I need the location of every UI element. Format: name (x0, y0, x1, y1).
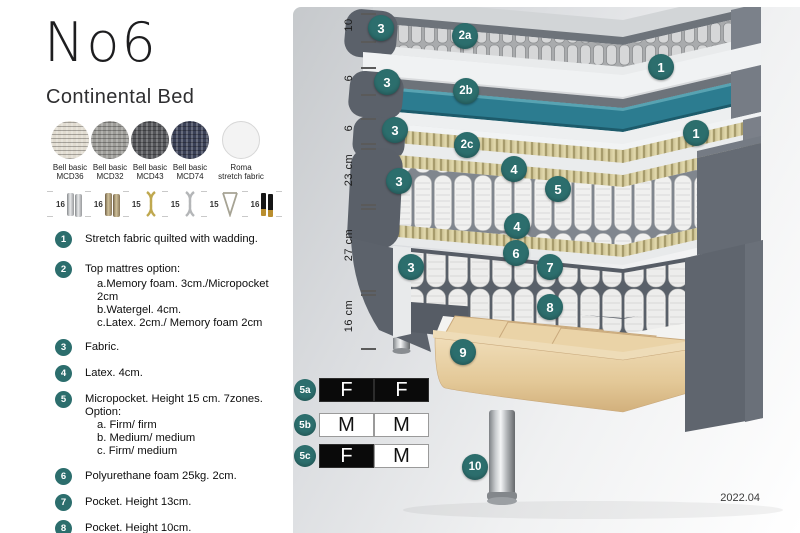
leg-height: 16 (56, 200, 65, 209)
dimension-tick (361, 204, 376, 206)
separator (242, 191, 248, 217)
fabric-swatch-image (222, 121, 260, 159)
dimension-label: 23 cm (343, 150, 355, 190)
callout-badge: 1 (683, 120, 709, 146)
swatch-caption-line: Bell basic (133, 163, 167, 172)
fabric-swatch-caption: Roma stretch fabric (218, 163, 264, 181)
firmness-row-badge: 5b (294, 414, 316, 436)
firmness-cells: F F (319, 378, 429, 402)
legend-item-7: 7 Pocket. Height 13cm. (55, 494, 290, 511)
callout-badge: 6 (503, 240, 529, 266)
page: No6 Continental Bed Bell basic MCD36 Bel… (0, 0, 800, 533)
legend-item-5: 5 Micropocket. Height 15 cm. 7zones. Opt… (55, 391, 290, 458)
callout-badge: 3 (398, 254, 424, 280)
leg-option-twisted-silver: 15 (171, 191, 198, 217)
legend-text: Micropocket. Height 15 cm. 7zones. Optio… (85, 391, 290, 419)
fabric-swatch-caption: Bell basic MCD32 (93, 163, 127, 181)
leg-height: 16 (251, 200, 260, 209)
swatch-caption-line: stretch fabric (218, 172, 264, 181)
callout-badge: 3 (382, 117, 408, 143)
swatch-caption-line: Bell basic (53, 163, 87, 172)
swatch-caption-line: Bell basic (93, 163, 127, 172)
separator (47, 191, 53, 217)
firmness-cell: F (319, 444, 374, 468)
callout-badge: 3 (368, 15, 394, 41)
legend-number-badge: 5 (55, 391, 72, 408)
separator (276, 191, 282, 217)
dimension-tick (361, 294, 376, 296)
version-label: 2022.04 (720, 492, 760, 504)
fabric-swatch: Bell basic MCD36 (50, 121, 90, 181)
separator (85, 191, 91, 217)
firmness-row-5c: 5c F M (294, 444, 429, 468)
fabric-swatch-caption: Bell basic MCD43 (133, 163, 167, 181)
callout-badge: 9 (450, 339, 476, 365)
firmness-row-5b: 5b M M (294, 413, 429, 437)
swatch-caption-line: MCD36 (53, 172, 87, 181)
callout-badge: 1 (648, 54, 674, 80)
legend-text: Pocket. Height 13cm. (85, 494, 191, 511)
callout-badge: 4 (504, 213, 530, 239)
legend-number-badge: 7 (55, 494, 72, 511)
callout-badge: 3 (374, 69, 400, 95)
product-subtitle: Continental Bed (46, 86, 194, 109)
legend-subitem: c.Latex. 2cm./ Memory foam 2cm (97, 317, 290, 330)
dimension-label: 10 (343, 5, 355, 45)
leg-option-twisted-gold: 15 (132, 191, 159, 217)
front-metal-leg (487, 410, 517, 505)
firmness-cell: M (319, 413, 374, 437)
hairpin-leg-icon (221, 191, 239, 217)
callout-badge: 4 (501, 156, 527, 182)
swatch-caption-line: MCD43 (133, 172, 167, 181)
legend-item-1: 1 Stretch fabric quilted with wadding. (55, 231, 290, 248)
callout-badge: 5 (545, 176, 571, 202)
twisted-leg-icon (143, 191, 159, 217)
legend-text: Stretch fabric quilted with wadding. (85, 231, 258, 248)
dimension-tick (361, 67, 376, 69)
legend-text: Top mattres option: (85, 261, 180, 278)
firmness-row-badge: 5a (294, 379, 316, 401)
swatch-caption-line: MCD32 (93, 172, 127, 181)
legend-number-badge: 8 (55, 520, 72, 533)
legend-item-4: 4 Latex. 4cm. (55, 365, 290, 382)
dimension-tick (361, 94, 376, 96)
callout-badge: 10 (462, 454, 488, 480)
swatch-caption-line: Roma (218, 163, 264, 172)
leg-height: 16 (94, 200, 103, 209)
callout-badge: 3 (386, 168, 412, 194)
firmness-cell: M (374, 444, 429, 468)
legend-number-badge: 6 (55, 468, 72, 485)
firmness-cells: M M (319, 413, 429, 437)
dimension-tick (361, 208, 376, 210)
dimension-label: 6 (343, 58, 355, 98)
dimension-tick (361, 290, 376, 292)
firmness-cells: F M (319, 444, 429, 468)
legend-text: Fabric. (85, 339, 119, 356)
leg-option-black-gold: 16 (251, 191, 274, 217)
legend-item-2: 2 Top mattres option: a.Memory foam. 3cm… (55, 261, 290, 330)
swatch-caption-line: MCD74 (173, 172, 207, 181)
fabric-swatch-image (171, 121, 209, 159)
dimension-tick (361, 348, 376, 350)
callout-badge: 7 (537, 254, 563, 280)
fabric-swatch: Bell basic MCD74 (170, 121, 210, 181)
leg-height: 15 (132, 200, 141, 209)
cylinder-leg-icon (75, 194, 82, 217)
cylinder-leg-icon (67, 193, 74, 216)
firmness-cell: M (374, 413, 429, 437)
legend-number-badge: 2 (55, 261, 72, 278)
fabric-swatch: Bell basic MCD43 (130, 121, 170, 181)
product-title: No6 (44, 16, 158, 70)
legend-number-badge: 1 (55, 231, 72, 248)
dimension-label: 6 (343, 108, 355, 148)
bed-cutaway-diagram: 10 6 6 23 cm 27 cm 16 cm 3 2a 1 3 2b 3 2… (293, 7, 800, 533)
swatch-caption-line: Bell basic (173, 163, 207, 172)
fabric-swatch-image (51, 121, 89, 159)
legend-text: Polyurethane foam 25kg. 2cm. (85, 468, 237, 485)
legend-item-8: 8 Pocket. Height 10cm. (55, 520, 290, 533)
callout-badge: 2a (452, 23, 478, 49)
legend-subitem: a.Memory foam. 3cm./Micropocket 2cm (97, 278, 290, 304)
info-panel: No6 Continental Bed Bell basic MCD36 Bel… (0, 0, 295, 533)
black-gold-leg-icon (261, 193, 266, 216)
fabric-swatch-caption: Bell basic MCD74 (173, 163, 207, 181)
dimension-tick (361, 143, 376, 145)
callout-badge: 2b (453, 78, 479, 104)
separator (162, 191, 168, 217)
dimension-label: 16 cm (343, 296, 355, 336)
fabric-swatch: Bell basic MCD32 (90, 121, 130, 181)
fabric-swatches: Bell basic MCD36 Bell basic MCD32 Bell b… (50, 121, 266, 181)
leg-option-cylinder-silver: 16 (56, 191, 82, 217)
dimension-tick (361, 13, 376, 15)
callout-badge: 8 (537, 294, 563, 320)
leg-height: 15 (171, 200, 180, 209)
separator (123, 191, 129, 217)
legend-item-6: 6 Polyurethane foam 25kg. 2cm. (55, 468, 290, 485)
dimension-tick (361, 118, 376, 120)
legend-number-badge: 4 (55, 365, 72, 382)
twisted-leg-icon (182, 191, 198, 217)
firmness-cell: F (374, 378, 429, 402)
fabric-swatch: Roma stretch fabric (216, 121, 266, 181)
leg-option-hairpin: 15 (210, 191, 239, 217)
leg-option-cylinder-bronze: 16 (94, 191, 120, 217)
fabric-swatch-image (131, 121, 169, 159)
leg-options: 16 16 15 15 (45, 187, 284, 221)
cylinder-leg-icon (113, 194, 120, 217)
legend-subitem: a. Firm/ firm (97, 419, 290, 432)
dimension-tick (361, 148, 376, 150)
firmness-row-5a: 5a F F (294, 378, 429, 402)
fabric-swatch-caption: Bell basic MCD36 (53, 163, 87, 181)
legend-text: Pocket. Height 10cm. (85, 520, 191, 533)
firmness-cell: F (319, 378, 374, 402)
separator (201, 191, 207, 217)
dimension-label: 27 cm (343, 225, 355, 265)
callout-badge: 2c (454, 132, 480, 158)
legend-item-3: 3 Fabric. (55, 339, 290, 356)
legend-subitem: c. Firm/ medium (97, 445, 290, 458)
black-gold-leg-icon (268, 194, 273, 217)
legend-number-badge: 3 (55, 339, 72, 356)
firmness-row-badge: 5c (294, 445, 316, 467)
fabric-swatch-image (91, 121, 129, 159)
legend-subitem: b.Watergel. 4cm. (97, 304, 290, 317)
leg-height: 15 (210, 200, 219, 209)
cylinder-leg-icon (105, 193, 112, 216)
legend-subitem: b. Medium/ medium (97, 432, 290, 445)
dimension-tick (361, 41, 376, 43)
legend-text: Latex. 4cm. (85, 365, 143, 382)
layer-legend: 1 Stretch fabric quilted with wadding. 2… (55, 231, 290, 533)
